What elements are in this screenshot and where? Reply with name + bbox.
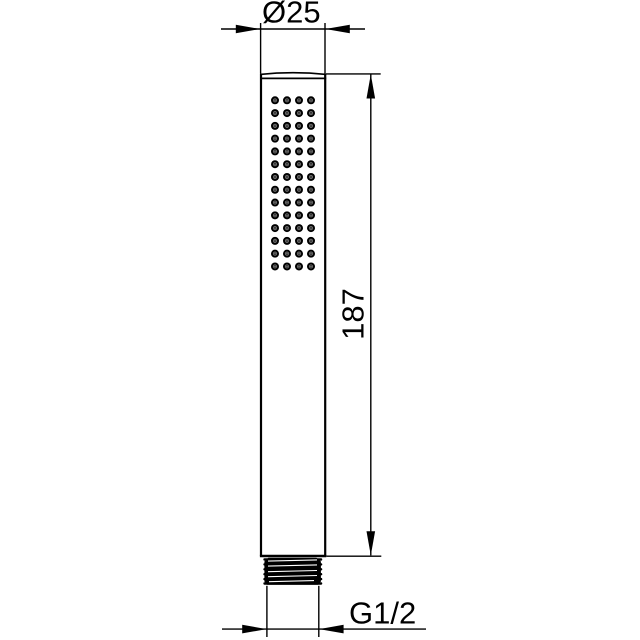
svg-text:Ø25: Ø25 <box>262 0 321 29</box>
svg-text:187: 187 <box>335 288 370 340</box>
svg-text:G1/2: G1/2 <box>349 595 416 630</box>
